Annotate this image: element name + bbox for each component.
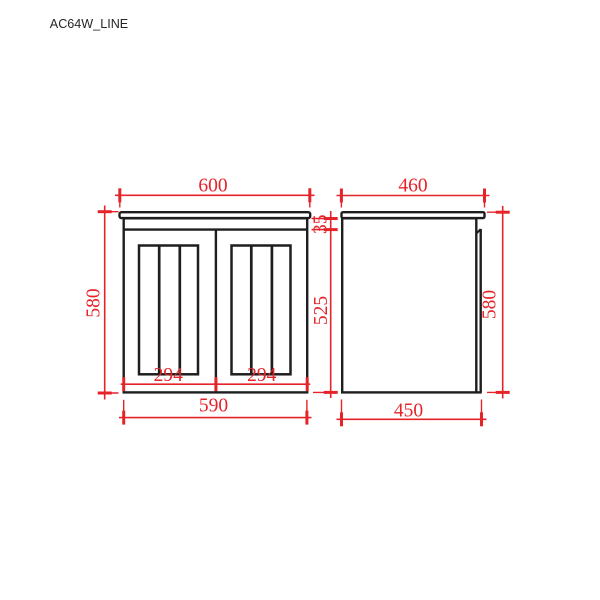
svg-text:460: 460 <box>398 175 427 196</box>
svg-text:AC64W_LINE: AC64W_LINE <box>50 17 128 31</box>
svg-text:525: 525 <box>311 296 332 325</box>
svg-text:450: 450 <box>394 401 423 422</box>
svg-text:580: 580 <box>84 288 105 317</box>
svg-text:294: 294 <box>154 365 184 386</box>
svg-text:600: 600 <box>198 175 227 196</box>
svg-text:294: 294 <box>247 365 277 386</box>
svg-text:580: 580 <box>480 290 501 319</box>
svg-text:35: 35 <box>311 214 332 234</box>
svg-text:590: 590 <box>199 396 228 417</box>
